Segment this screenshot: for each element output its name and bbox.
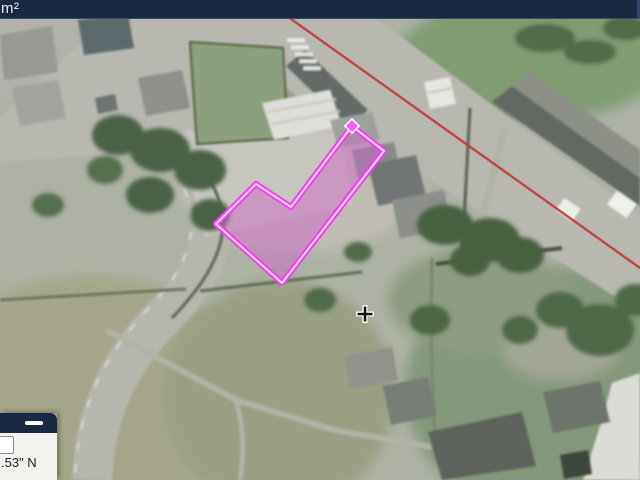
minimize-button[interactable] bbox=[22, 418, 46, 430]
area-unit-label: m² bbox=[1, 0, 20, 18]
coordinates-panel-header bbox=[0, 413, 57, 433]
top-bar: m² bbox=[0, 0, 640, 19]
coordinates-panel: .53" N bbox=[0, 413, 57, 480]
coordinate-input[interactable] bbox=[0, 436, 14, 454]
minimize-icon bbox=[25, 421, 43, 425]
coordinates-panel-body: .53" N bbox=[0, 433, 57, 480]
coordinate-text: .53" N bbox=[1, 455, 37, 470]
app-window: m² .53" N bbox=[0, 0, 640, 480]
map-canvas[interactable] bbox=[0, 0, 640, 480]
